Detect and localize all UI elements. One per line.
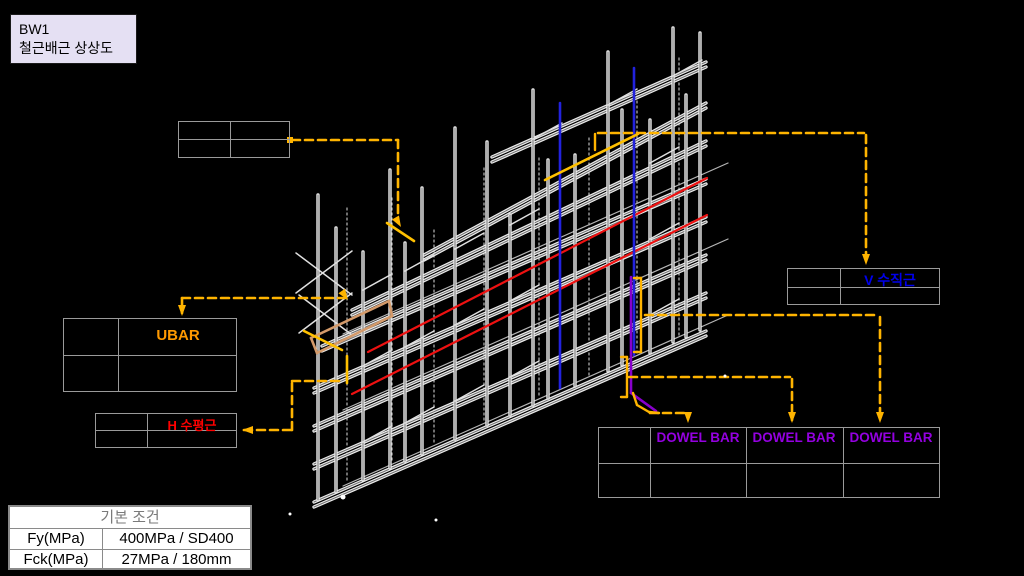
v-bar-label: V 수직근 — [842, 270, 938, 290]
fy-value: 400MPa / SD400 — [103, 529, 250, 549]
table-divider — [599, 463, 939, 464]
annotation-table-ubar: UBAR — [63, 318, 237, 392]
dowel-bar-label-2: DOWEL BAR — [748, 430, 840, 445]
fck-label: Fck(MPa) — [10, 550, 103, 570]
h-bar-label: H 수평근 — [149, 415, 235, 434]
annotation-table-empty — [178, 121, 290, 158]
drawing-title-box: BW1 철근배근 상상도 — [10, 14, 137, 64]
table-row: Fy(MPa) 400MPa / SD400 — [10, 529, 250, 550]
ubar-label: UBAR — [120, 327, 236, 344]
fck-value: 27MPa / 180mm — [103, 550, 250, 570]
annotation-table-dowel: DOWEL BAR DOWEL BAR DOWEL BAR — [598, 427, 940, 498]
annotation-table-h-bar: H 수평근 — [95, 413, 237, 448]
conditions-table: 기본 조건 Fy(MPa) 400MPa / SD400 Fck(MPa) 27… — [8, 505, 252, 570]
table-row: Fck(MPa) 27MPa / 180mm — [10, 550, 250, 570]
dowel-bar-label-1: DOWEL BAR — [652, 430, 744, 445]
annotation-table-v-bar: V 수직근 — [787, 268, 940, 305]
dowel-bar-label-3: DOWEL BAR — [845, 430, 937, 445]
table-divider — [64, 355, 236, 356]
drawing-title: 철근배근 상상도 — [19, 39, 136, 58]
cad-canvas: BW1 철근배근 상상도 UBAR H 수평근 V 수직근 DOWEL BAR … — [0, 0, 1024, 576]
fy-label: Fy(MPa) — [10, 529, 103, 549]
drawing-number: BW1 — [19, 20, 136, 39]
conditions-table-header: 기본 조건 — [10, 507, 250, 529]
table-divider — [179, 139, 289, 140]
